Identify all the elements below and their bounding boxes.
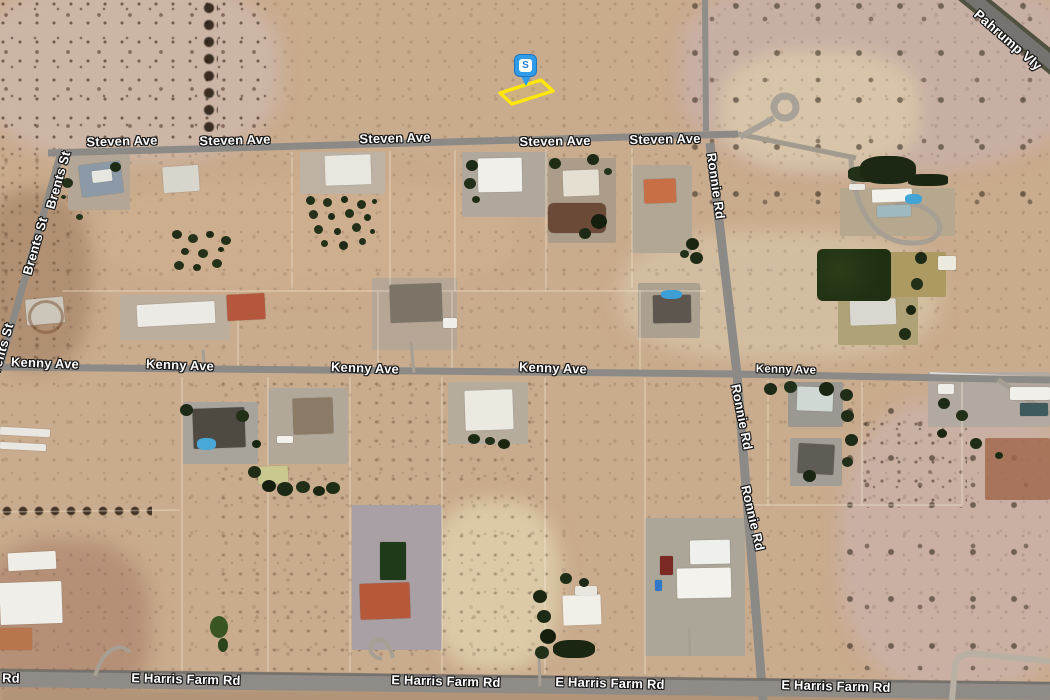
street-label-steven-ave-3: Steven Ave bbox=[519, 133, 590, 149]
street-label-steven-ave-2: Steven Ave bbox=[359, 130, 431, 147]
street-label-ronnie-rd-20: Ronnie Rd bbox=[738, 484, 768, 552]
street-label-rd-14: Rd bbox=[2, 670, 20, 685]
street-label-e-harris-farm-rd-10: E Harris Farm Rd bbox=[131, 670, 241, 688]
street-label-kenny-ave-5: Kenny Ave bbox=[11, 354, 80, 371]
pin-label: S bbox=[519, 59, 532, 72]
property-marker-pin[interactable]: S bbox=[514, 54, 538, 88]
street-label-brents-st-16: Brents St bbox=[20, 215, 51, 276]
street-label-pahrump-vly-21: Pahrump Vly bbox=[971, 7, 1045, 74]
street-label-kenny-ave-7: Kenny Ave bbox=[331, 359, 400, 376]
street-label-brents-st-15: Brents St bbox=[43, 149, 74, 210]
satellite-map[interactable]: Steven AveSteven AveSteven AveSteven Ave… bbox=[0, 0, 1050, 700]
street-label-steven-ave-4: Steven Ave bbox=[629, 131, 700, 147]
street-label-e-harris-farm-rd-11: E Harris Farm Rd bbox=[391, 672, 501, 690]
pin-head: S bbox=[514, 54, 537, 77]
pin-tail bbox=[521, 76, 531, 86]
street-labels-layer: Steven AveSteven AveSteven AveSteven Ave… bbox=[0, 0, 1050, 700]
street-label-steven-ave-0: Steven Ave bbox=[86, 133, 158, 150]
street-label-kenny-ave-6: Kenny Ave bbox=[146, 356, 215, 373]
street-label-e-harris-farm-rd-12: E Harris Farm Rd bbox=[555, 674, 665, 692]
street-label-kenny-ave-9: Kenny Ave bbox=[756, 363, 817, 377]
street-label-ronnie-rd-18: Ronnie Rd bbox=[704, 152, 728, 220]
street-label-ronnie-rd-19: Ronnie Rd bbox=[728, 383, 755, 451]
street-label-kenny-ave-8: Kenny Ave bbox=[519, 359, 588, 376]
street-label-brents-st-17: Brents St bbox=[0, 321, 16, 382]
street-label-e-harris-farm-rd-13: E Harris Farm Rd bbox=[781, 677, 891, 695]
street-label-steven-ave-1: Steven Ave bbox=[199, 132, 271, 149]
